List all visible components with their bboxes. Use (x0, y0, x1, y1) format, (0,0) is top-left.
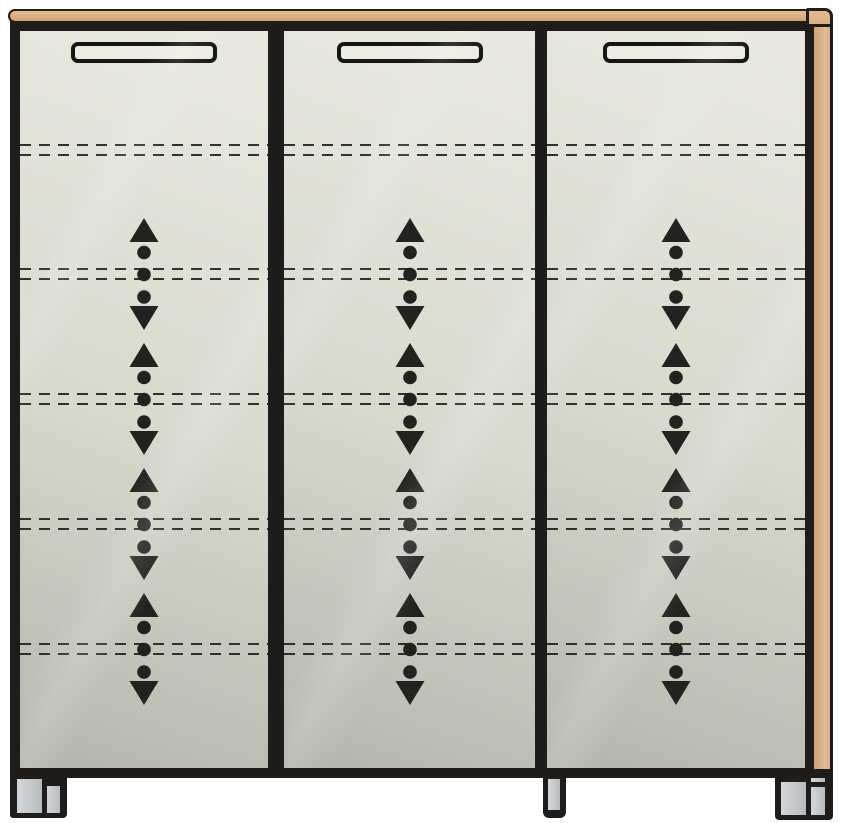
down-arrow-icon (662, 306, 691, 330)
dot-icon (403, 621, 417, 635)
dot-icon (403, 268, 417, 282)
down-arrow-icon (662, 556, 691, 580)
shelf-adjust-arrows (394, 342, 426, 456)
dot-icon (137, 665, 151, 679)
up-arrow-icon (395, 593, 424, 617)
up-arrow-icon (130, 468, 159, 492)
dashed-line (284, 144, 535, 146)
shelf-adjust-arrows (394, 467, 426, 581)
shelf-adjust-arrows (660, 592, 692, 706)
dot-icon (403, 540, 417, 554)
shelf-adjust-indicator (660, 467, 692, 581)
shelf-adjust-arrows (660, 217, 692, 331)
wood-top-end-cap (806, 8, 833, 27)
dot-icon (403, 518, 417, 532)
door-1 (20, 31, 268, 768)
dashed-line (547, 154, 805, 156)
dot-icon (403, 393, 417, 407)
shelf-adjust-indicator (394, 467, 426, 581)
shelf-adjust-arrows (394, 217, 426, 331)
dot-icon (137, 246, 151, 260)
up-arrow-icon (395, 218, 424, 242)
shelf-adjust-indicator (128, 592, 160, 706)
dot-icon (669, 540, 683, 554)
shelf-adjust-arrows (128, 592, 160, 706)
shelf-position-dashed-line (20, 144, 268, 156)
up-arrow-icon (395, 468, 424, 492)
door-handle (71, 42, 217, 63)
down-arrow-icon (395, 556, 424, 580)
door-2 (284, 31, 535, 768)
dot-icon (669, 393, 683, 407)
wood-top-panel (8, 9, 808, 23)
dot-icon (669, 518, 683, 532)
dot-icon (137, 268, 151, 282)
shelf-adjust-arrows (128, 467, 160, 581)
dot-icon (137, 415, 151, 429)
dot-icon (403, 246, 417, 260)
shelf-adjust-indicator (128, 342, 160, 456)
dot-icon (137, 540, 151, 554)
shelf-position-dashed-line (547, 144, 805, 156)
dot-icon (137, 621, 151, 635)
down-arrow-icon (395, 306, 424, 330)
down-arrow-icon (130, 556, 159, 580)
shelf-adjust-indicator (128, 217, 160, 331)
dot-icon (403, 665, 417, 679)
door-3 (547, 31, 805, 768)
down-arrow-icon (395, 431, 424, 455)
dot-icon (137, 496, 151, 510)
dot-icon (669, 268, 683, 282)
up-arrow-icon (130, 218, 159, 242)
shelf-adjust-indicator (394, 592, 426, 706)
dot-icon (669, 371, 683, 385)
shelf-adjust-arrows (128, 217, 160, 331)
dashed-line (20, 144, 268, 146)
dot-icon (403, 290, 417, 304)
dot-icon (137, 518, 151, 532)
dot-icon (403, 371, 417, 385)
cabinet-illustration (0, 0, 844, 823)
dot-icon (403, 415, 417, 429)
down-arrow-icon (130, 306, 159, 330)
shelf-adjust-indicator (394, 217, 426, 331)
dot-icon (669, 415, 683, 429)
dashed-line (284, 154, 535, 156)
up-arrow-icon (662, 218, 691, 242)
shelf-adjust-indicator (660, 217, 692, 331)
dot-icon (137, 371, 151, 385)
dot-icon (403, 643, 417, 657)
shelf-adjust-indicator (660, 342, 692, 456)
shelf-adjust-arrows (660, 342, 692, 456)
dot-icon (669, 496, 683, 510)
door-row (0, 0, 844, 823)
dashed-line (547, 144, 805, 146)
down-arrow-icon (395, 681, 424, 705)
door-handle (337, 42, 483, 63)
shelf-adjust-arrows (394, 592, 426, 706)
shelf-position-dashed-line (284, 144, 535, 156)
shelf-adjust-indicator (128, 467, 160, 581)
dot-icon (669, 290, 683, 304)
up-arrow-icon (130, 593, 159, 617)
dot-icon (669, 246, 683, 260)
dot-icon (403, 496, 417, 510)
dot-icon (669, 665, 683, 679)
shelf-adjust-indicator (660, 592, 692, 706)
up-arrow-icon (395, 343, 424, 367)
shelf-adjust-arrows (128, 342, 160, 456)
dashed-line (20, 154, 268, 156)
down-arrow-icon (662, 431, 691, 455)
dot-icon (137, 393, 151, 407)
down-arrow-icon (130, 681, 159, 705)
dot-icon (669, 621, 683, 635)
down-arrow-icon (130, 431, 159, 455)
door-handle (603, 42, 749, 63)
up-arrow-icon (662, 343, 691, 367)
shelf-adjust-indicator (394, 342, 426, 456)
up-arrow-icon (130, 343, 159, 367)
dot-icon (137, 290, 151, 304)
down-arrow-icon (662, 681, 691, 705)
dot-icon (669, 643, 683, 657)
dot-icon (137, 643, 151, 657)
up-arrow-icon (662, 468, 691, 492)
shelf-adjust-arrows (660, 467, 692, 581)
up-arrow-icon (662, 593, 691, 617)
